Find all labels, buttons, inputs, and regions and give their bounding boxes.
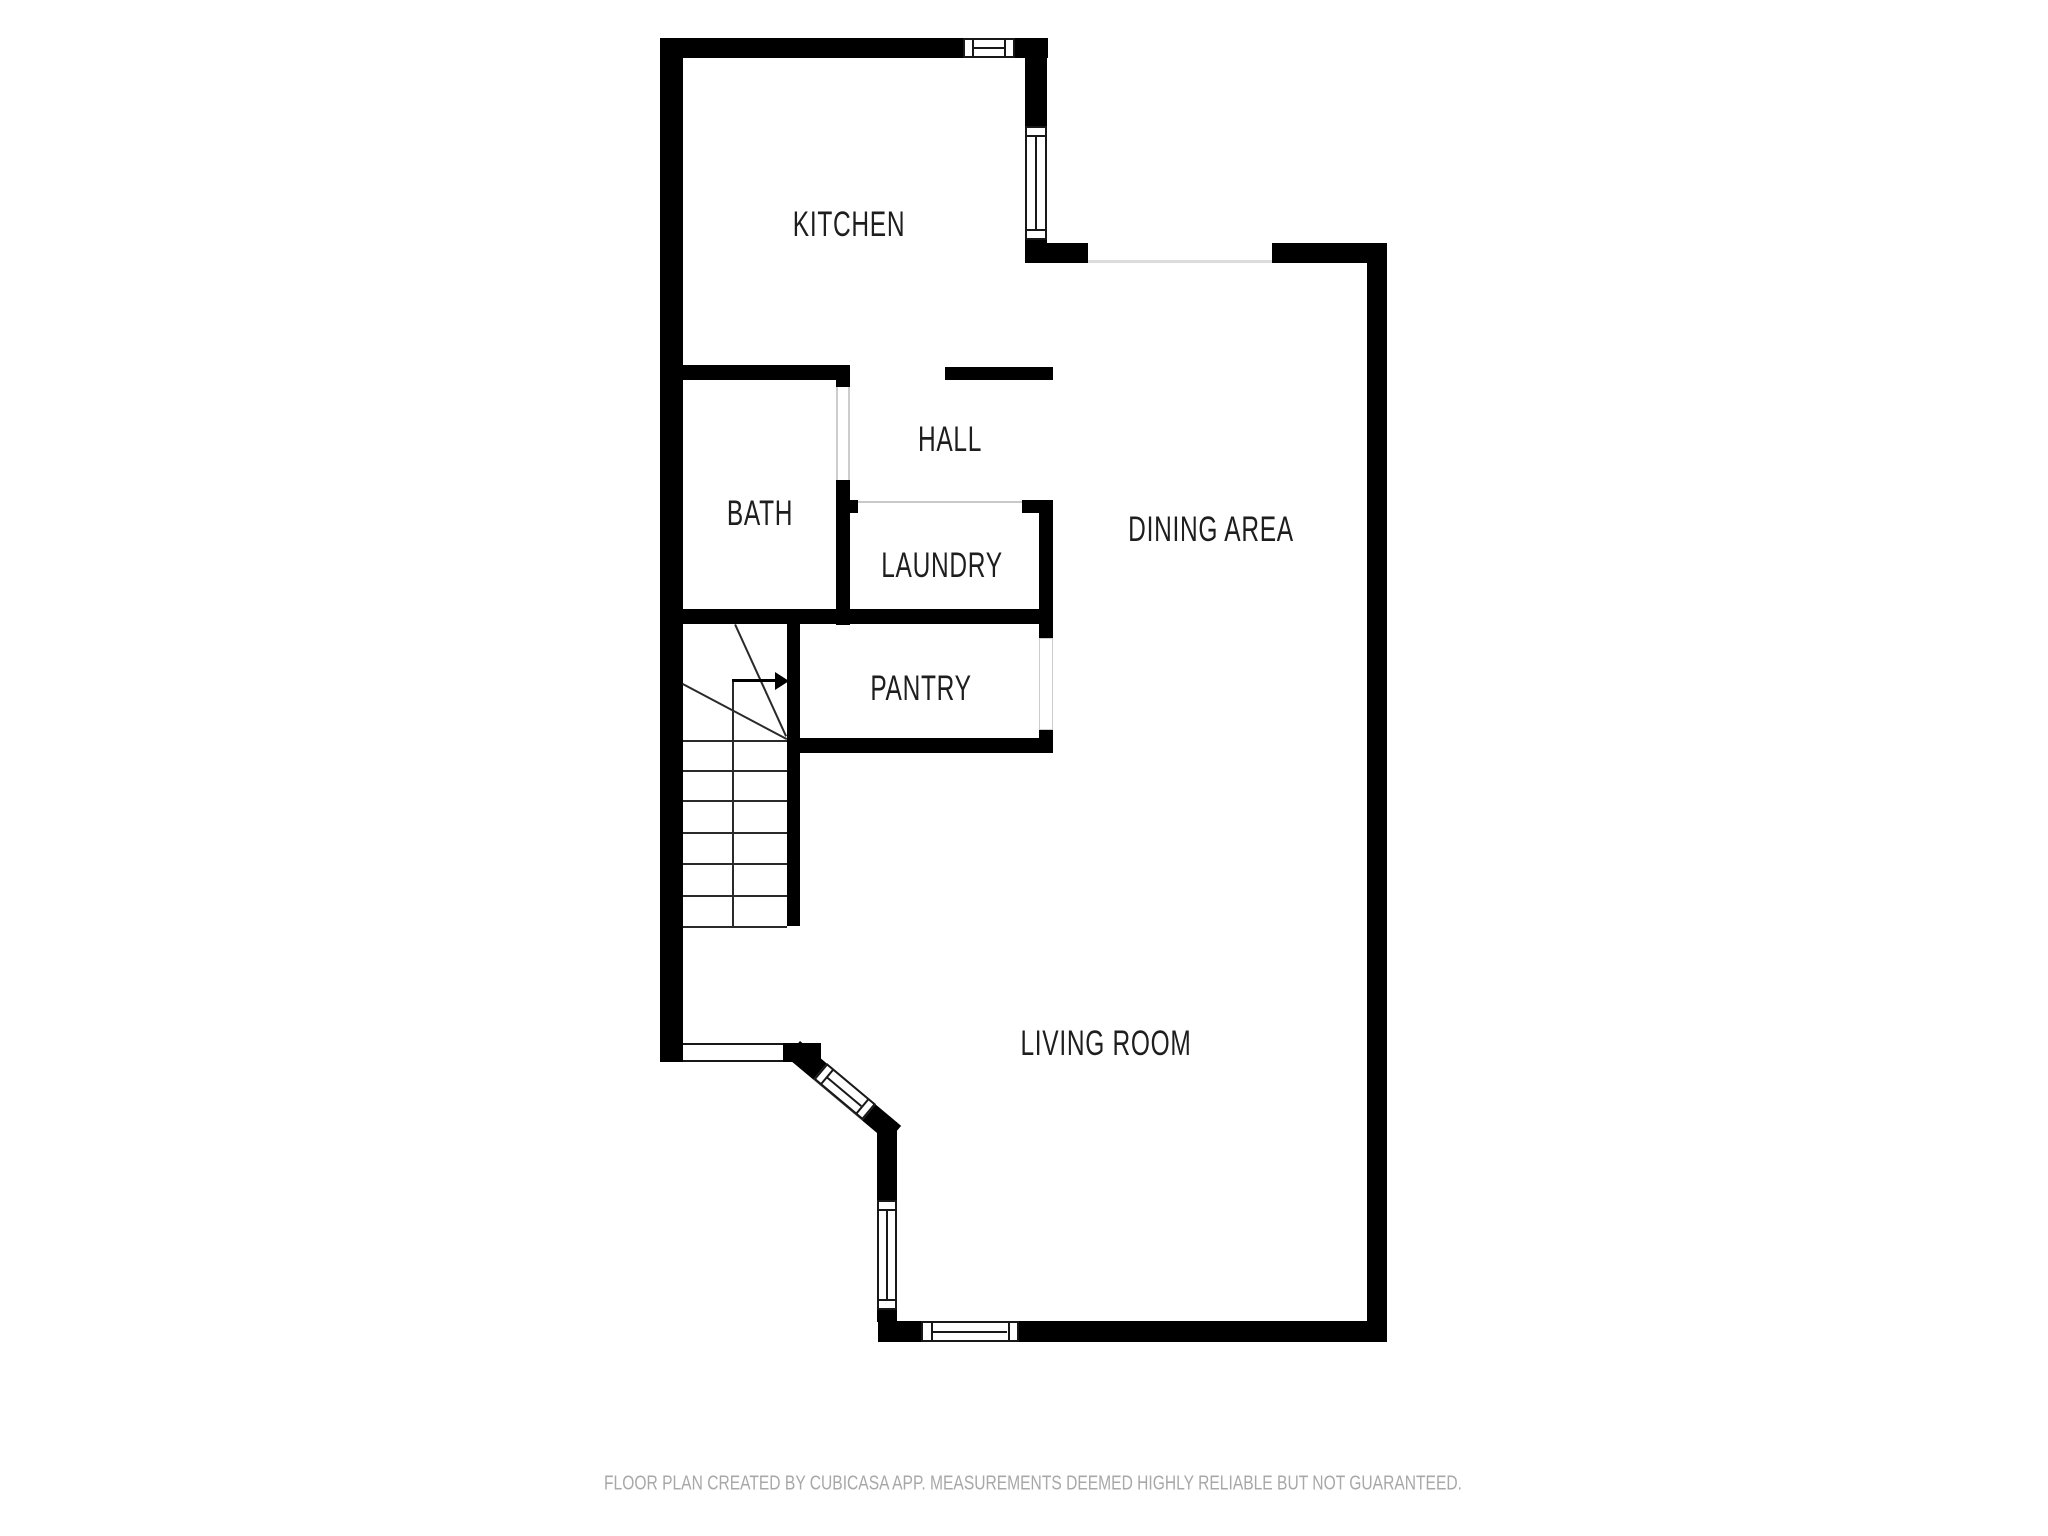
window-bay-diagonal (814, 1063, 877, 1120)
stairs-direction-arrow-shaft (732, 679, 776, 682)
window-kitchen-right (1025, 126, 1047, 240)
window-bay-left (683, 1043, 783, 1062)
stair-step (683, 740, 787, 742)
stair-winder-line (682, 683, 787, 740)
room-label-kitchen: KITCHEN (793, 205, 905, 245)
wall-bath-right-lower (836, 480, 850, 625)
wall-hall-top (945, 367, 1053, 380)
wall-bay-corner (783, 1043, 821, 1062)
room-label-pantry: PANTRY (870, 669, 971, 709)
stair-step (683, 800, 787, 802)
wall-laundry-left-nub (850, 500, 858, 513)
wall-bath-top (660, 365, 850, 380)
window-living-left (877, 1200, 897, 1310)
window-kitchen-top (963, 38, 1015, 58)
room-label-hall: HALL (918, 420, 982, 460)
wall-bath-right-upper (836, 365, 850, 387)
window-living-bottom (921, 1321, 1019, 1342)
bath-door-opening (836, 387, 850, 480)
pantry-door-opening (1039, 638, 1053, 730)
opening-kitchen-dining (1088, 260, 1272, 263)
footer-disclaimer: FLOOR PLAN CREATED BY CUBICASA APP. MEAS… (604, 1473, 1462, 1496)
wall-right (1367, 243, 1387, 1342)
floor-plan: KITCHEN HALL BATH LAUNDRY DINING AREA PA… (0, 0, 2048, 1536)
wall-pantry-bottom (800, 738, 1053, 753)
wall-left (660, 38, 683, 1062)
stair-step (683, 832, 787, 834)
wall-mid-horizontal (660, 609, 1053, 624)
stair-step (683, 770, 787, 772)
wall-laundry-right-top (1022, 500, 1053, 513)
stairs-direction-arrow-icon (775, 672, 789, 690)
room-label-bath: BATH (727, 494, 793, 534)
wall-stairs-right (787, 624, 800, 926)
stair-step (683, 863, 787, 865)
opening-laundry (858, 501, 1022, 503)
stair-step (683, 895, 787, 897)
stair-mid-line (732, 682, 734, 928)
room-label-living-room: LIVING ROOM (1020, 1024, 1191, 1064)
stair-step (683, 926, 787, 928)
room-label-dining-area: DINING AREA (1128, 510, 1294, 550)
room-label-laundry: LAUNDRY (881, 546, 1003, 586)
wall-kitchen-corner (1025, 243, 1088, 263)
